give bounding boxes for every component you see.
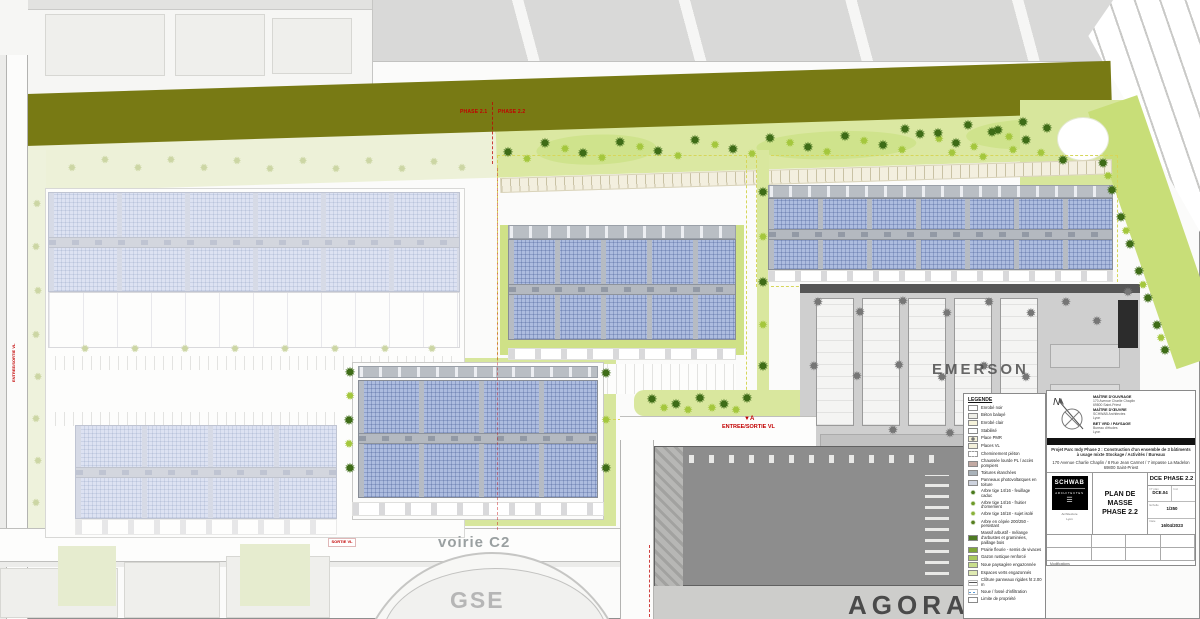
index-cell: Ind.	[1171, 486, 1195, 501]
legend-rows: Enrobé noirBéton balayéEnrobé clairStabi…	[968, 405, 1042, 603]
agora-label: AGORA	[848, 592, 970, 618]
legend-row: Prairie fleurie - semis de vivaces	[968, 547, 1042, 553]
legend-swatch-swatch	[968, 443, 978, 449]
building-A-roof	[48, 192, 460, 292]
legend-title: LEGENDE	[968, 397, 1042, 403]
legend-swatch-line-blue	[968, 589, 978, 595]
legend-swatch-swatch	[968, 461, 978, 467]
title-block-divider	[1047, 438, 1195, 445]
building-B-green-east	[736, 225, 744, 355]
scale-cell: Echelle 1/350	[1148, 502, 1195, 517]
project-description: Projet Parc Indy Phase 2 : Construction …	[1051, 447, 1191, 458]
contact-line: 69800 Saint-Priest	[1093, 403, 1193, 407]
building-B-green-west	[500, 225, 508, 355]
legend-label: Prairie fleurie - semis de vivaces	[981, 548, 1041, 553]
legend-row: Noue / fossé d'infiltration	[968, 589, 1042, 595]
legend-label: Noue / fossé d'infiltration	[981, 590, 1027, 595]
architect-address: Lyon	[1050, 517, 1089, 521]
legend-swatch-swatch	[968, 555, 978, 561]
legend-label: Clôture panneaux rigides ht 2.00 m	[981, 578, 1042, 588]
title-block: N MAÎTRE D'OUVRAGE 170 Avenue Charlie Ch…	[1046, 390, 1196, 566]
architect-sub: ARCHITECTES	[1055, 488, 1085, 495]
legend-label: Noue paysagère engazonnée	[981, 563, 1036, 568]
legend-swatch-tree: ✹	[968, 521, 978, 527]
legend-swatch-tree: ✹	[968, 491, 978, 497]
legend-label: Cheminement piéton	[981, 452, 1020, 457]
legend-row: Béton balayé	[968, 413, 1042, 419]
existing-building	[175, 14, 265, 76]
building-D-docks	[352, 502, 604, 516]
site-plan-sheet: ✹✹✹✹✹✹✹✹✹✹✹✹✹✹✹✹✹✹✹✹✹✹✹✹✹✹✹✹✹✹✹✹✹✹✹✹✹✹✹✹…	[0, 0, 1200, 619]
building-A-interior	[48, 292, 460, 348]
legend-row: Gazon rustique renforcé	[968, 555, 1042, 561]
legend-row: Panneaux photovoltaïques en toiture	[968, 478, 1042, 488]
phase-reference: DCE PHASE 2.2	[1148, 473, 1195, 486]
revision-table	[1047, 535, 1195, 561]
existing-road-strip	[28, 0, 372, 10]
building-B-dockband	[508, 225, 736, 239]
legend-swatch-swatch	[968, 420, 978, 426]
building-A2-roof	[75, 425, 337, 519]
architect-logo: SCHWAB ARCHITECTES ☰	[1052, 476, 1088, 510]
legend-label: Stabilisé	[981, 429, 997, 434]
legend-row: ✹Arbre tige 16/18 - sujet isolé	[968, 512, 1042, 518]
legend-label: Chaussée lourde PL / accès pompiers	[981, 459, 1042, 469]
exit-flag: SORTIE VL	[328, 538, 356, 547]
west-road-label: ENTREE/SORTIE VL	[12, 344, 16, 382]
legend-row: ✹Arbre tige 14/16 - fruitier d'ornement	[968, 501, 1042, 511]
building-A-court	[55, 412, 335, 426]
legend-row: Place PMR	[968, 436, 1042, 442]
legend-row: Toitures étanchées	[968, 470, 1042, 476]
existing-building	[272, 18, 352, 74]
legend-swatch-swatch-circle	[968, 436, 978, 442]
legend-swatch-swatch	[968, 428, 978, 434]
legend-swatch-swatch	[968, 547, 978, 553]
legend-row: Chaussée lourde PL / accès pompiers	[968, 459, 1042, 469]
legend-label: Arbre tige 14/16 - feuillage caduc	[981, 489, 1042, 499]
existing-courtyard	[240, 544, 310, 606]
date-cell: Date 16/04/2023	[1148, 519, 1195, 534]
drawing-title: PLAN DE MASSE PHASE 2.2	[1093, 490, 1147, 517]
landscape-west-strip	[28, 150, 46, 530]
legend-swatch-swatch	[968, 405, 978, 411]
legend-panel: LEGENDE Enrobé noirBéton balayéEnrobé cl…	[963, 393, 1046, 619]
existing-building	[124, 562, 220, 618]
parcel-strip	[373, 0, 1200, 62]
legend-row: ✹Arbre tige 14/16 - feuillage caduc	[968, 489, 1042, 499]
legend-swatch-swatch	[968, 470, 978, 476]
contact-line: Lyon	[1093, 430, 1193, 434]
north-compass: N	[1049, 393, 1091, 436]
legend-row: Noue paysagère engazonnée	[968, 562, 1042, 568]
existing-building	[45, 14, 165, 76]
legend-label: Béton balayé	[981, 413, 1005, 418]
existing-courtyard	[58, 546, 116, 606]
building-C-docks	[768, 270, 1113, 282]
legend-row: Limite de propriété	[968, 597, 1042, 603]
legend-row: ✹Arbre en cépée 200/250 - persistant	[968, 520, 1042, 530]
legend-swatch-tree: ✹	[968, 512, 978, 518]
legend-swatch-swatch	[968, 570, 978, 576]
legend-label: Limite de propriété	[981, 597, 1016, 602]
legend-swatch-swatch	[968, 480, 978, 486]
drawing-number-cell: N° plan DCE.04	[1148, 486, 1171, 501]
legend-swatch-swatch-dash	[968, 451, 978, 457]
building-B-docks	[508, 348, 736, 360]
legend-swatch-swatch	[968, 535, 978, 541]
architect-logo-mark: ☰	[1052, 497, 1088, 504]
building-C-roof	[768, 198, 1113, 270]
legend-label: Places VL	[981, 444, 1000, 449]
legend-row: Clôture panneaux rigides ht 2.00 m	[968, 578, 1042, 588]
phase-21-label: PHASE 2.1	[460, 110, 487, 115]
legend-row: Cheminement piéton	[968, 451, 1042, 457]
building-B-roof	[508, 239, 736, 340]
legend-label: Panneaux photovoltaïques en toiture	[981, 478, 1042, 488]
building-B-green-south	[508, 340, 736, 348]
emerson-label: EMERSON	[932, 362, 1029, 377]
legend-label: Arbre en cépée 200/250 - persistant	[981, 520, 1042, 530]
phase-limit-line	[497, 168, 498, 530]
legend-row: Stabilisé	[968, 428, 1042, 434]
legend-row: Enrobé noir	[968, 405, 1042, 411]
building-D-roof	[358, 380, 598, 498]
entrance-median	[634, 390, 814, 416]
entrance-marker: ▼A	[744, 416, 754, 422]
legend-label: Massif arbustif - mélange d'arbustes et …	[981, 531, 1042, 545]
building-C-dockband	[768, 185, 1113, 198]
parcel-divider	[372, 0, 373, 93]
legend-row: Espaces verts engazonnés	[968, 570, 1042, 576]
building-D-dockband	[358, 366, 598, 378]
site-limit-line	[649, 545, 650, 617]
legend-row: Enrobé clair	[968, 420, 1042, 426]
entrance-label: ENTREE/SORTIE VL	[722, 425, 775, 431]
legend-swatch-line-dark	[968, 580, 978, 586]
modifications-label: Modifications	[1047, 561, 1195, 567]
contact-line: Lyon	[1093, 416, 1193, 420]
legend-label: Gazon rustique renforcé	[981, 555, 1026, 560]
legend-label: Place PMR	[981, 436, 1002, 441]
legend-swatch-swatch	[968, 562, 978, 568]
road-c2-label: voirie C2	[438, 535, 510, 550]
legend-label: Toitures étanchées	[981, 471, 1016, 476]
project-address: 170 Avenue Charlie Chaplin / 8 Rue Jean …	[1051, 460, 1191, 471]
building-A2-docks	[75, 519, 337, 535]
architect-name: SCHWAB	[1052, 480, 1088, 486]
legend-swatch-swatch	[968, 413, 978, 419]
legend-swatch-tree: ✹	[968, 502, 978, 508]
phase-limit-line	[492, 102, 493, 164]
legend-row: Places VL	[968, 443, 1042, 449]
building-agora	[654, 446, 966, 586]
legend-label: Arbre tige 16/18 - sujet isolé	[981, 512, 1033, 517]
architect-address: Architecture	[1050, 512, 1089, 516]
legend-label: Enrobé clair	[981, 421, 1003, 426]
legend-label: Enrobé noir	[981, 406, 1003, 411]
gse-label: GSE	[450, 589, 505, 612]
legend-swatch-swatch	[968, 597, 978, 603]
legend-label: Espaces verts engazonnés	[981, 571, 1031, 576]
phase-22-label: PHASE 2.2	[498, 110, 525, 115]
legend-label: Arbre tige 14/16 - fruitier d'ornement	[981, 501, 1042, 511]
legend-row: Massif arbustif - mélange d'arbustes et …	[968, 531, 1042, 545]
